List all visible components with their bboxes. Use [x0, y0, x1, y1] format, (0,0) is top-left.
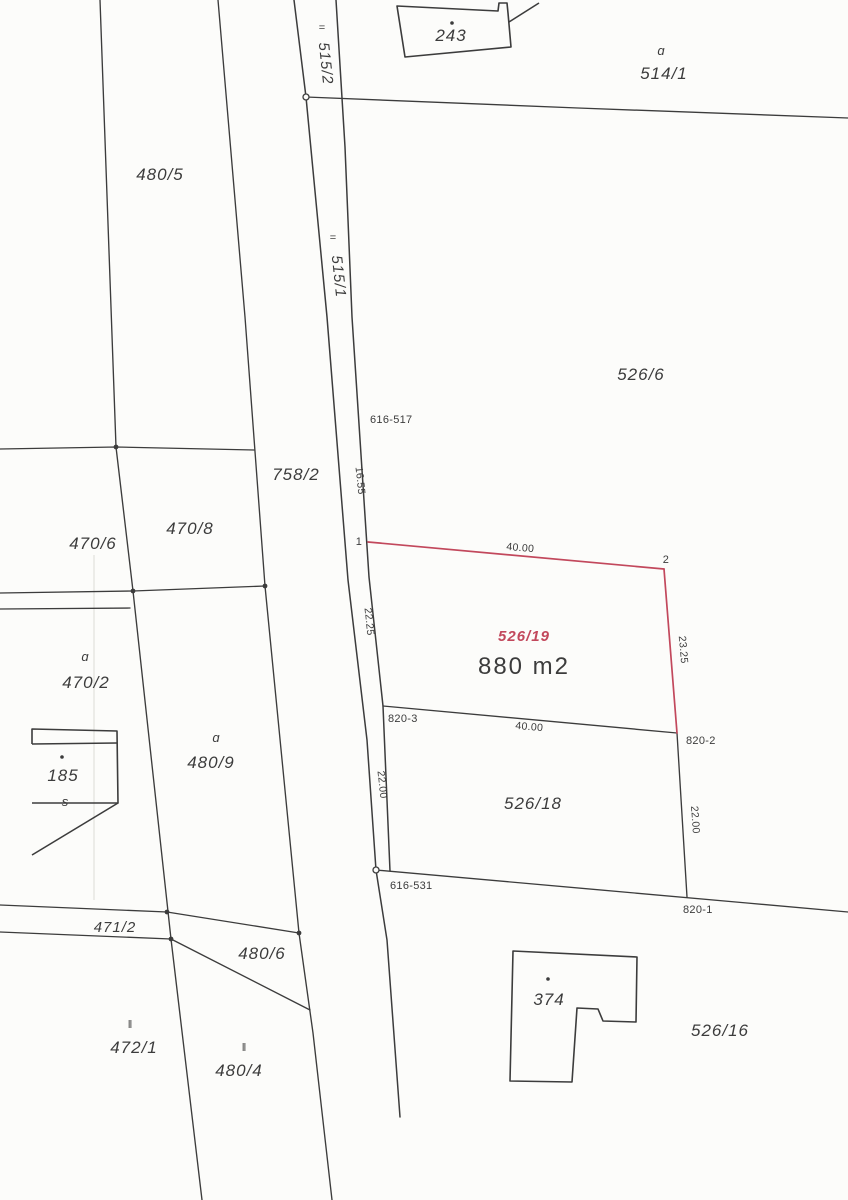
landuse-icon-514-1: ɑ: [657, 43, 665, 58]
dimension-23-25: 23.25: [676, 635, 690, 664]
point-label-820-2: 820-2: [686, 735, 716, 747]
landuse-icon-472-1: ‖: [128, 1019, 133, 1031]
road-471-2-north: [0, 905, 167, 912]
road-mark-icon: =: [319, 22, 325, 34]
landuse-icon-480-9: ɑ: [212, 730, 220, 745]
landuse-icon-185: s: [62, 794, 69, 809]
node-marker: [263, 584, 268, 589]
parcel-label-470-8: 470/8: [166, 519, 214, 538]
node-marker: [169, 937, 174, 942]
parcel-label-471-2: 471/2: [94, 919, 137, 936]
point-label-616-517: 616-517: [370, 414, 412, 426]
road-left-edge: [294, 0, 400, 1117]
boundary-526-18-south: [376, 870, 848, 912]
parcel-label-480-4: 480/4: [215, 1061, 263, 1080]
building-185-inner-line: [32, 743, 117, 744]
building-dot-374: [546, 977, 550, 981]
building-label-374: 374: [533, 990, 564, 1009]
survey-node-markers: [60, 21, 550, 981]
dimension-22-00-left: 22.00: [375, 770, 390, 799]
parcel-label-526-16: 526/16: [691, 1021, 749, 1040]
parcel-label-526-19-highlight: 526/19: [498, 628, 550, 645]
parcel-labels: 515/2 515/1 243 514/1 480/5 526/6 758/2 …: [47, 26, 749, 1080]
boundary-470-2-north: [0, 608, 130, 609]
point-label-616-531: 616-531: [390, 880, 432, 892]
node-marker: [303, 94, 309, 100]
building-dot-243: [450, 21, 454, 25]
landuse-icon-470-2: ɑ: [81, 649, 89, 664]
dimension-top-width: 40.00: [506, 541, 535, 555]
parcel-label-515-1: 515/1: [328, 254, 349, 298]
building-label-185: 185: [47, 766, 78, 785]
building-243-annex-line: [509, 3, 539, 22]
parcel-label-514-1: 514/1: [640, 64, 688, 83]
boundary-470-8-north: [0, 447, 254, 450]
node-marker: [114, 445, 119, 450]
building-label-243: 243: [434, 26, 466, 45]
road-right-edge: [336, 0, 390, 871]
parcel-label-470-2: 470/2: [62, 673, 110, 692]
node-marker: [165, 910, 170, 915]
landuse-icon-480-4: ‖: [242, 1042, 247, 1054]
dimension-mid-width: 40.00: [515, 720, 544, 734]
building-374-outline: [510, 951, 637, 1082]
node-marker: [373, 867, 379, 873]
parcel-area-526-19: 880 m2: [478, 653, 570, 680]
dimension-labels: 40.00 40.00 16.55 22.25 23.25 22.00 22.0…: [353, 466, 702, 834]
point-label-820-3: 820-3: [388, 713, 418, 725]
parcel-label-472-1: 472/1: [110, 1038, 158, 1057]
dimension-22-25: 22.25: [362, 607, 377, 636]
parcel-label-470-6: 470/6: [69, 534, 117, 553]
parcel-label-480-6: 480/6: [238, 944, 286, 963]
parcel-label-515-2: 515/2: [315, 41, 336, 85]
building-185-diagonal: [32, 803, 118, 855]
point-label-820-1: 820-1: [683, 904, 713, 916]
building-dot-185: [60, 755, 64, 759]
cadastral-map-page: 515/2 515/1 243 514/1 480/5 526/6 758/2 …: [0, 0, 848, 1200]
boundary-480-6-north: [167, 912, 299, 933]
boundary-526-18-east: [677, 733, 687, 897]
road-mark-icon: =: [330, 232, 336, 244]
parcel-label-758-2: 758/2: [272, 465, 320, 484]
node-marker: [297, 931, 302, 936]
parcel-label-526-6: 526/6: [617, 365, 665, 384]
corner-label-2: 2: [663, 554, 669, 566]
dimension-16-55: 16.55: [353, 466, 368, 495]
cadastral-map-canvas: 515/2 515/1 243 514/1 480/5 526/6 758/2 …: [0, 0, 848, 1200]
parcel-label-480-9: 480/9: [187, 753, 235, 772]
dimension-22-00-right: 22.00: [688, 806, 702, 835]
road-471-2-south: [0, 932, 171, 939]
node-marker: [131, 589, 136, 594]
parcel-526-19-east-red: [664, 569, 677, 733]
corner-label-1: 1: [356, 536, 362, 548]
parcel-label-526-18: 526/18: [504, 794, 562, 813]
boundary-514-1-south: [306, 97, 848, 118]
parcel-label-480-5: 480/5: [136, 165, 184, 184]
east-column-boundary: [218, 0, 332, 1200]
